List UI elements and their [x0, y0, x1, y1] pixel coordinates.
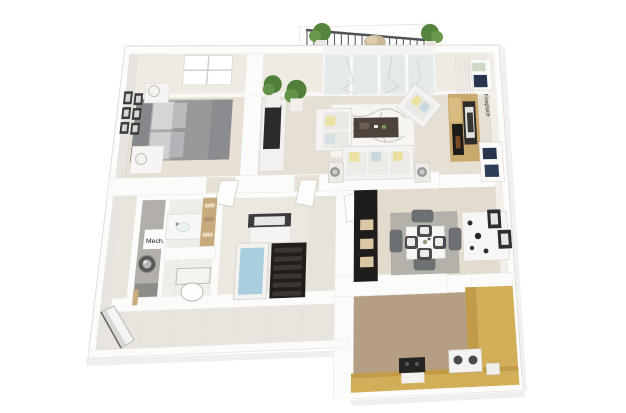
- svg-text:Mech.: Mech.: [146, 238, 165, 245]
